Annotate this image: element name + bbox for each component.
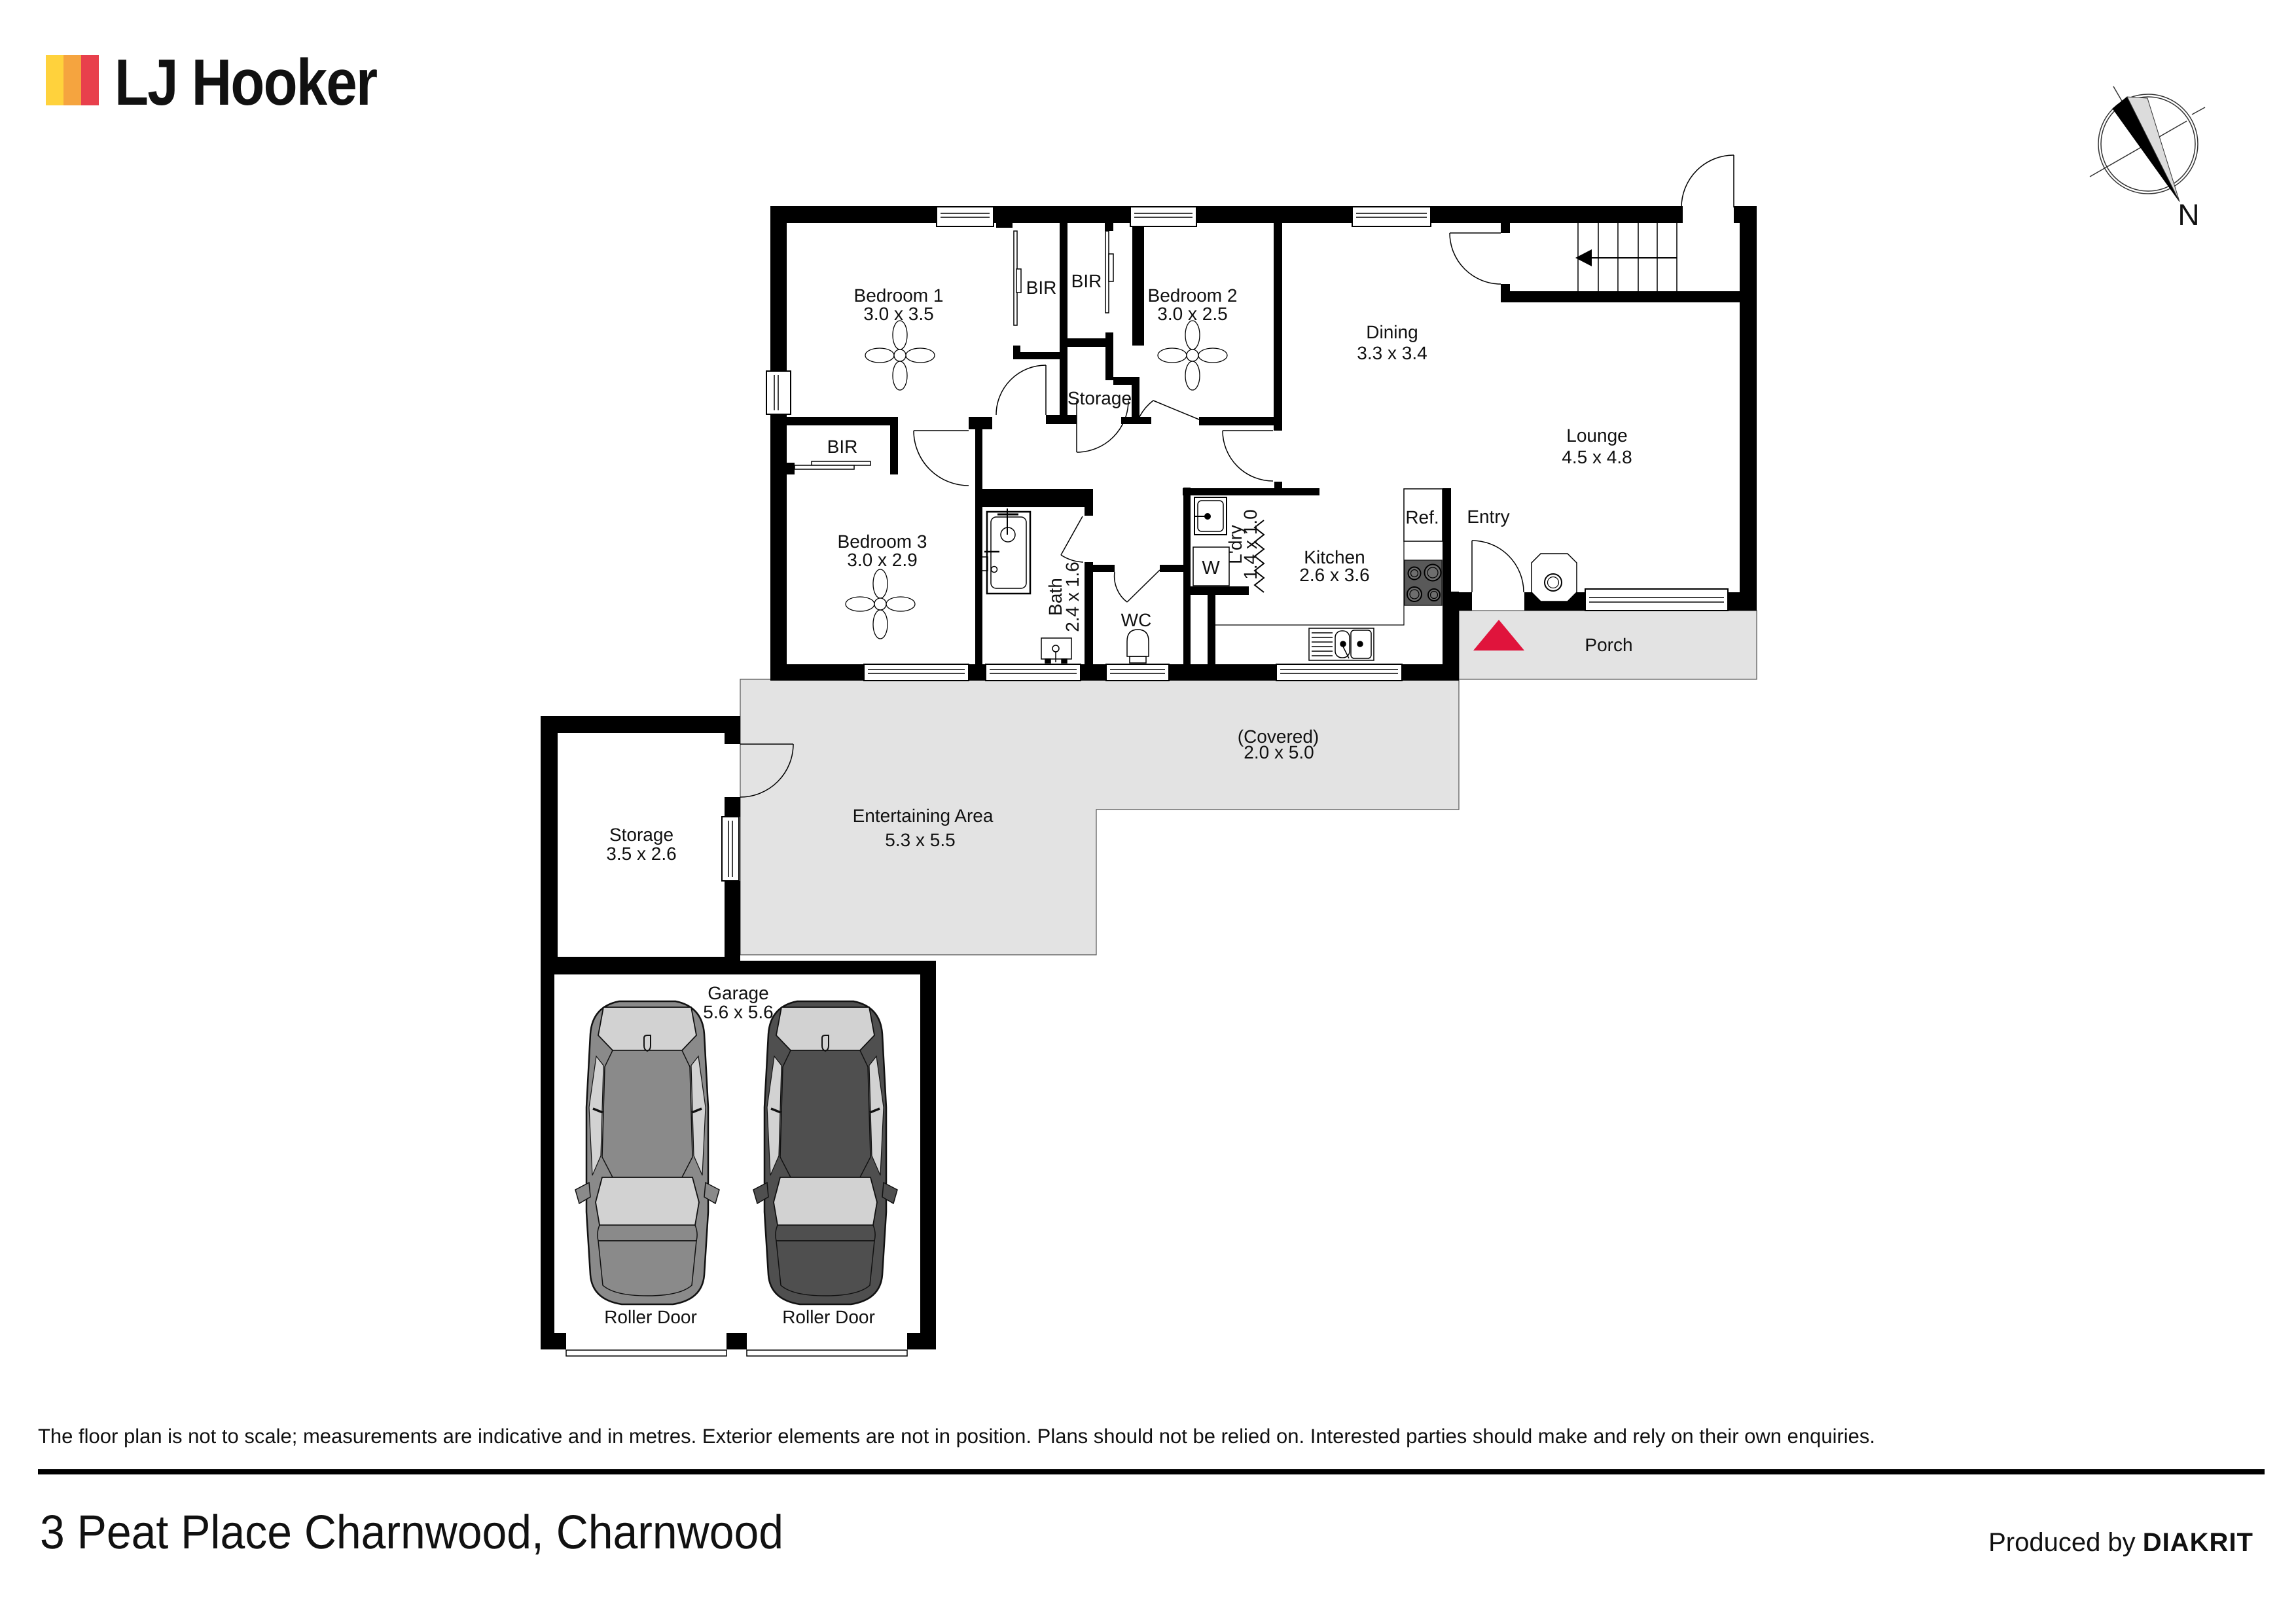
svg-text:Bedroom 1: Bedroom 1 [854,285,944,306]
svg-text:2.4 x 1.6: 2.4 x 1.6 [1062,562,1083,632]
svg-text:3.0 x 2.9: 3.0 x 2.9 [847,550,917,570]
svg-text:Ref.: Ref. [1405,507,1439,527]
svg-text:BIR: BIR [1071,271,1102,291]
svg-text:N: N [2178,198,2199,232]
svg-text:Roller Door: Roller Door [604,1307,697,1327]
svg-text:Garage: Garage [708,983,768,1003]
svg-text:Entertaining Area: Entertaining Area [853,806,994,826]
svg-text:The floor plan is not to scale: The floor plan is not to scale; measurem… [38,1425,1875,1448]
svg-text:1.4 x 1.0: 1.4 x 1.0 [1240,509,1261,579]
svg-text:5.6 x 5.6: 5.6 x 5.6 [703,1002,773,1022]
svg-text:2.6 x 3.6: 2.6 x 3.6 [1299,565,1369,585]
svg-text:Lounge: Lounge [1566,425,1627,446]
svg-text:LJ Hooker: LJ Hooker [115,46,377,119]
svg-text:W: W [1202,558,1220,579]
svg-text:Dining: Dining [1366,322,1418,342]
svg-text:Produced by DIAKRIT: Produced by DIAKRIT [1988,1528,2253,1557]
svg-text:4.5 x 4.8: 4.5 x 4.8 [1562,447,1632,467]
svg-text:3.0 x 2.5: 3.0 x 2.5 [1157,304,1227,324]
svg-text:Bedroom 3: Bedroom 3 [838,531,927,552]
svg-text:Storage: Storage [609,825,673,845]
svg-text:Porch: Porch [1585,635,1632,655]
svg-text:BIR: BIR [827,437,858,457]
svg-text:3.3 x 3.4: 3.3 x 3.4 [1357,343,1427,363]
svg-text:3.0 x 3.5: 3.0 x 3.5 [863,304,933,324]
svg-text:Roller Door: Roller Door [782,1307,875,1327]
svg-text:BIR: BIR [1026,277,1057,298]
svg-text:2.0 x 5.0: 2.0 x 5.0 [1244,742,1314,762]
svg-text:Storage: Storage [1067,388,1132,408]
svg-text:5.3 x 5.5: 5.3 x 5.5 [885,830,955,850]
svg-text:3 Peat Place Charnwood, Charnw: 3 Peat Place Charnwood, Charnwood [40,1506,783,1559]
svg-text:3.5 x 2.6: 3.5 x 2.6 [606,844,676,864]
svg-text:WC: WC [1121,610,1152,630]
svg-text:Bedroom 2: Bedroom 2 [1148,285,1238,306]
svg-text:Entry: Entry [1467,507,1509,527]
